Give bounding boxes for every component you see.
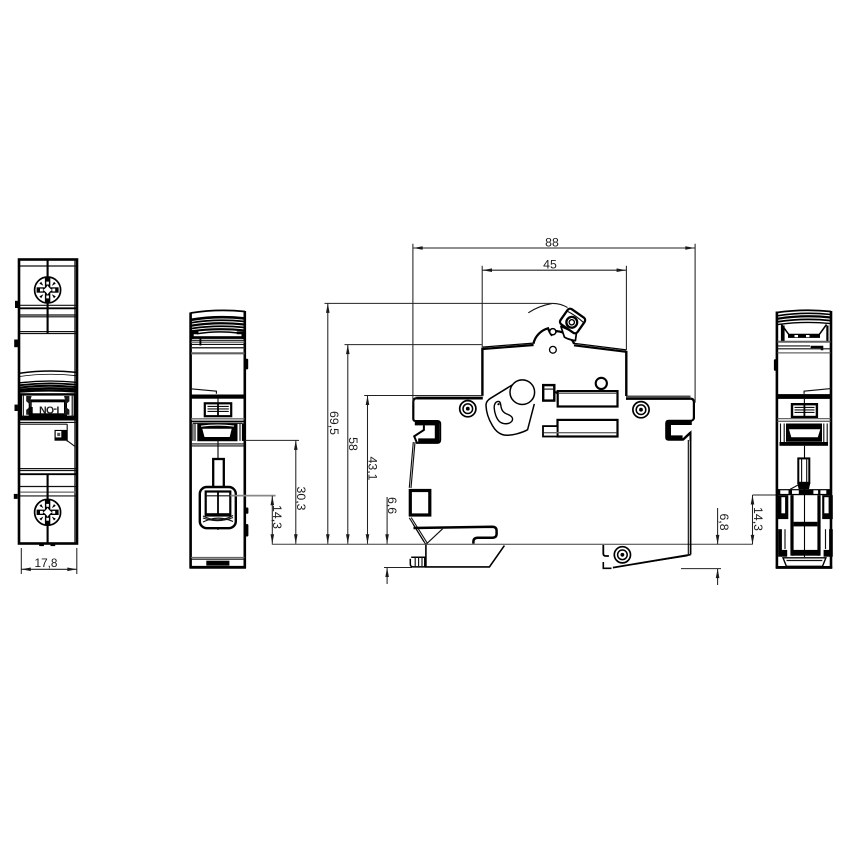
svg-text:30,3: 30,3 bbox=[294, 487, 308, 511]
svg-text:6,6: 6,6 bbox=[385, 497, 399, 514]
svg-text:58: 58 bbox=[346, 437, 360, 451]
svg-text:6,8: 6,8 bbox=[717, 513, 731, 530]
svg-text:45: 45 bbox=[543, 258, 557, 272]
svg-text:14,3: 14,3 bbox=[751, 507, 765, 531]
svg-text:14,3: 14,3 bbox=[270, 505, 284, 529]
svg-text:69,5: 69,5 bbox=[327, 411, 341, 435]
svg-text:17,8: 17,8 bbox=[35, 556, 58, 570]
svg-text:88: 88 bbox=[545, 235, 559, 249]
svg-text:I-ON: I-ON bbox=[40, 403, 60, 415]
svg-text:43,1: 43,1 bbox=[365, 457, 379, 481]
